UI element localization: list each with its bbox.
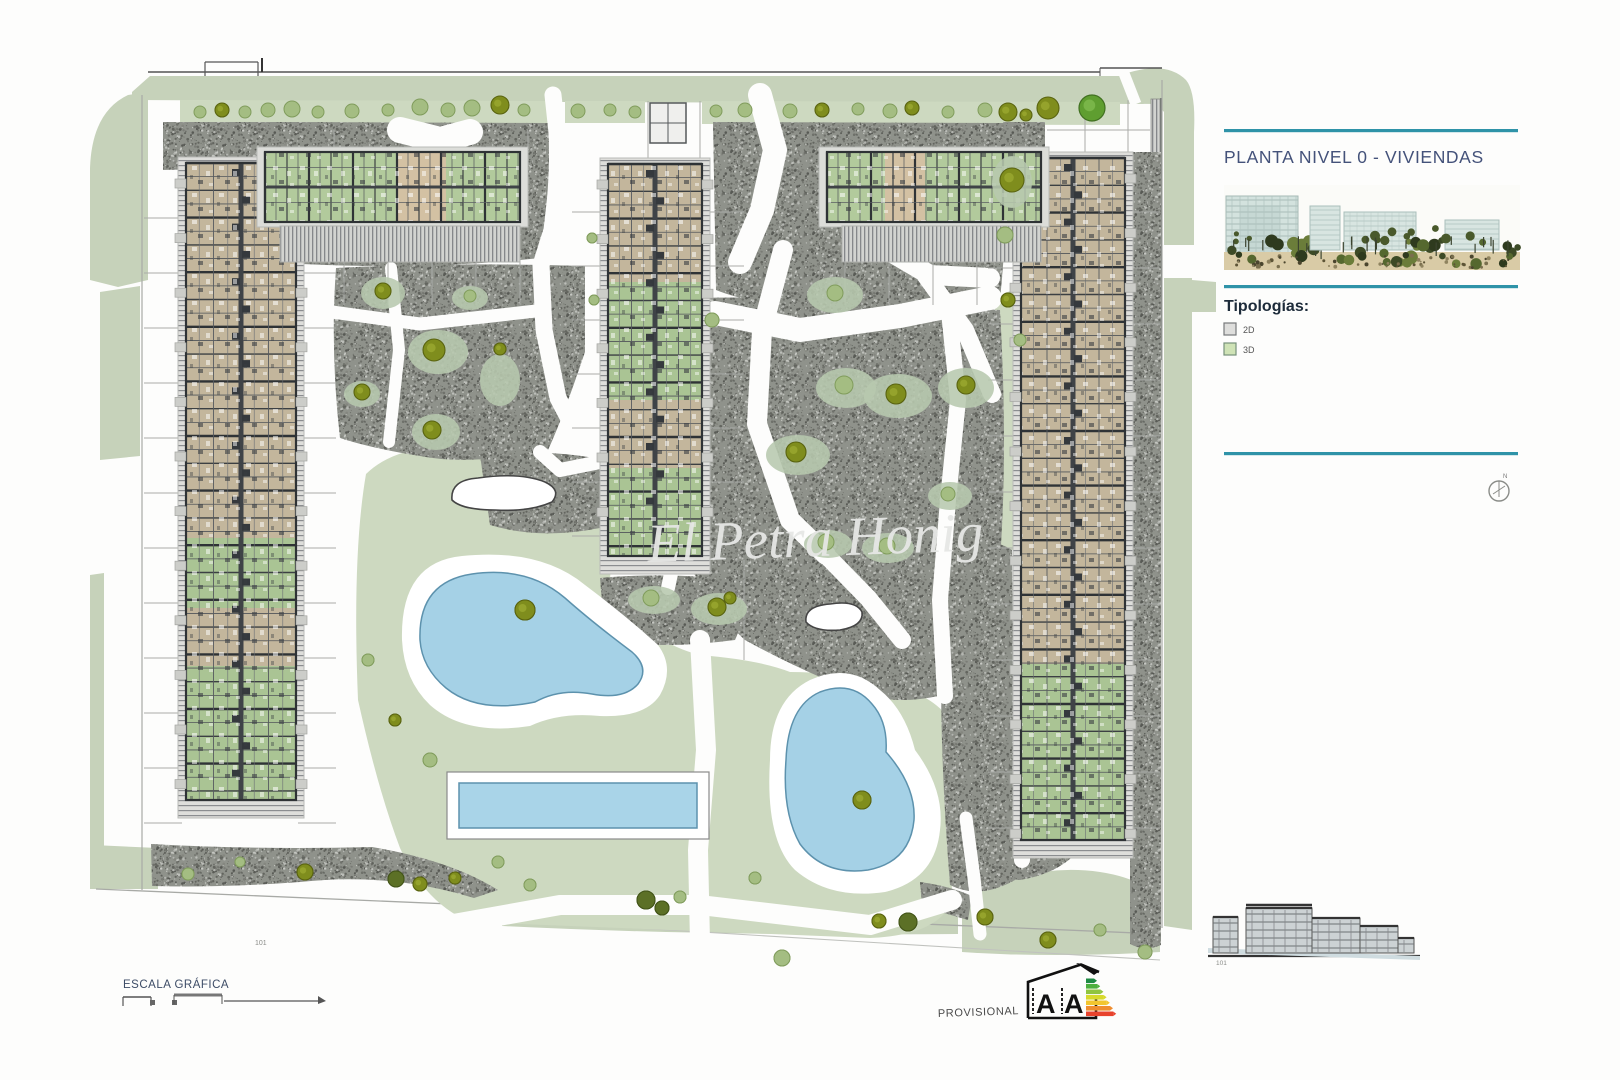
svg-text:A: A — [1064, 989, 1084, 1019]
svg-text:El Petra Honig: El Petra Honig — [645, 501, 984, 574]
svg-text:PLANTA NIVEL 0 - VIVIENDAS: PLANTA NIVEL 0 - VIVIENDAS — [1224, 147, 1484, 167]
svg-text:3D: 3D — [1243, 345, 1255, 355]
svg-text:A: A — [1036, 989, 1056, 1019]
svg-text:N: N — [1503, 474, 1507, 480]
svg-text:Tipologías:: Tipologías: — [1224, 298, 1309, 315]
svg-text:101: 101 — [1216, 960, 1227, 967]
svg-text:2D: 2D — [1243, 325, 1255, 335]
svg-text:101: 101 — [255, 940, 267, 947]
svg-text:ESCALA GRÁFICA: ESCALA GRÁFICA — [123, 978, 229, 991]
